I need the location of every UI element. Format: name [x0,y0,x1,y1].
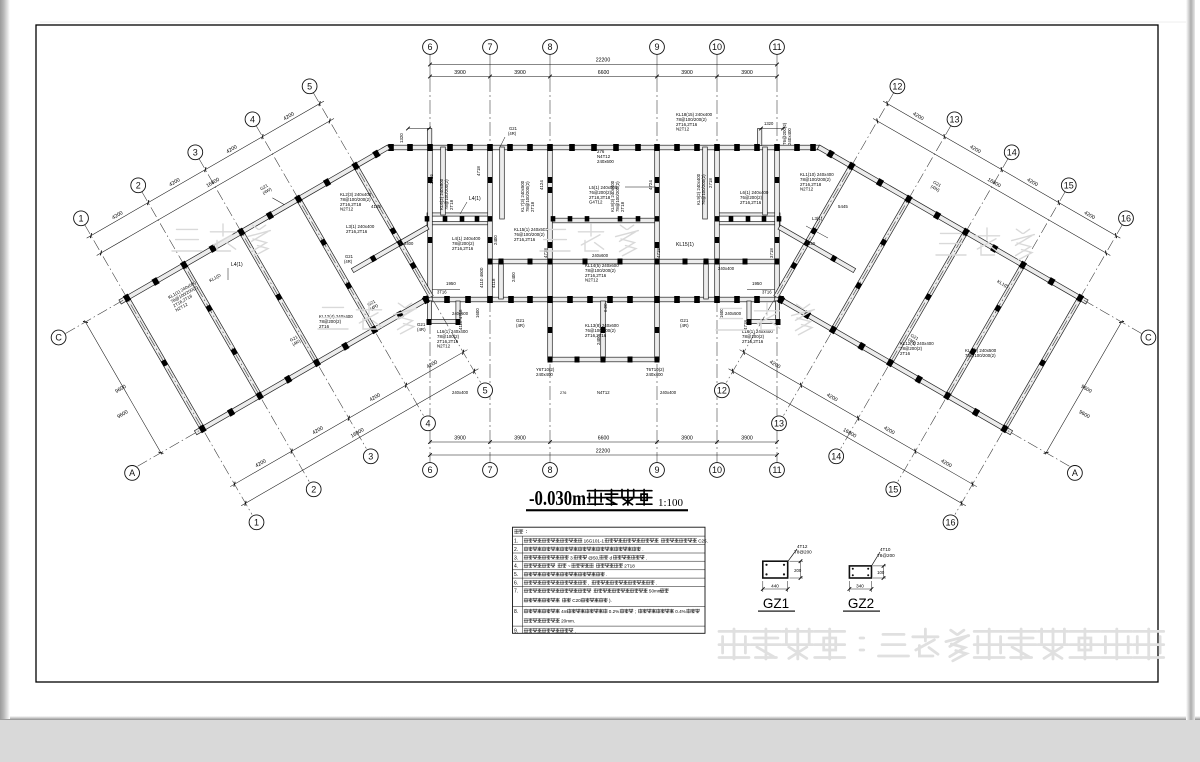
svg-text:2.: 2. [514,547,518,553]
svg-text:2T16,2T16: 2T16,2T16 [452,246,474,251]
svg-text:3718: 3718 [769,248,774,258]
svg-text:12: 12 [717,386,727,396]
svg-text:4718: 4718 [543,248,548,258]
svg-text:240x400: 240x400 [646,372,663,377]
svg-text:).: ). [609,598,612,603]
svg-text:1950: 1950 [446,281,456,286]
svg-text:3900: 3900 [454,435,466,441]
svg-text:1.: 1. [514,539,518,545]
svg-text:240x400: 240x400 [787,128,792,145]
svg-text:2400: 2400 [404,241,414,246]
svg-text:8.: 8. [514,609,518,615]
svg-text:14: 14 [1007,148,1017,158]
svg-text:2400: 2400 [511,272,516,282]
svg-text:4155: 4155 [371,204,381,209]
svg-text:2T18: 2T18 [449,199,454,210]
svg-text:N2T12: N2T12 [437,344,451,349]
svg-text:78@100/200(2): 78@100/200(2) [965,353,996,358]
svg-text:2T18: 2T18 [530,201,535,212]
svg-text:20mm.: 20mm. [561,619,575,624]
svg-text:7.: 7. [514,589,518,595]
svg-text:N2T12: N2T12 [800,187,814,192]
svg-text:2T16: 2T16 [319,324,330,329]
svg-text:4T10: 4T10 [880,547,891,552]
svg-text:6: 6 [427,42,432,52]
svg-text:4118: 4118 [491,278,496,288]
svg-text:3900: 3900 [454,70,466,76]
svg-text:10: 10 [712,42,722,52]
svg-text:3900: 3900 [514,435,526,441]
svg-text:L4(1): L4(1) [231,262,243,268]
svg-text:276: 276 [560,391,566,395]
svg-text:6.00: 6.00 [603,303,608,312]
svg-text:5: 5 [483,386,488,396]
svg-text:L3(1): L3(1) [812,216,823,221]
svg-text:4718: 4718 [476,166,481,176]
svg-text:4718: 4718 [656,248,661,258]
svg-text:(4R): (4R) [508,131,517,136]
svg-text:N4T12: N4T12 [597,390,610,395]
svg-text:340: 340 [856,583,864,588]
svg-text:15: 15 [888,485,898,495]
svg-text:4118 4718: 4118 4718 [458,309,463,330]
svg-text:13: 13 [774,419,784,429]
svg-text:G4T12: G4T12 [589,200,603,205]
svg-text:2T16,2T16: 2T16,2T16 [514,237,536,242]
svg-text:9.: 9. [514,629,518,635]
svg-text:8: 8 [547,465,552,475]
svg-text:@50,: @50, [588,555,599,560]
svg-text:3900: 3900 [741,70,753,76]
svg-text:1:100: 1:100 [658,497,684,509]
svg-text:5: 5 [307,82,312,92]
svg-text:-0.030m: -0.030m [529,486,586,510]
svg-text:2T18: 2T18 [624,564,635,569]
svg-text:6600: 6600 [598,435,610,441]
svg-text:5.: 5. [514,572,518,578]
svg-text:2: 2 [311,485,316,495]
svg-text:16G101-1: 16G101-1 [584,539,605,544]
svg-text:2T16,2T16: 2T16,2T16 [740,200,762,205]
svg-text:3: 3 [193,148,198,158]
svg-text:16: 16 [945,518,955,528]
svg-text:4m: 4m [561,609,568,614]
svg-text:3T16: 3T16 [437,290,447,295]
svg-text:,: , [588,581,589,586]
svg-text:N2T12: N2T12 [676,127,690,132]
svg-text:5445: 5445 [838,204,848,209]
svg-text:14: 14 [831,452,841,462]
svg-text:100: 100 [877,570,885,575]
svg-text:T8@200: T8@200 [794,550,812,555]
svg-text:L4(1): L4(1) [469,196,481,202]
svg-text:.: . [606,572,607,577]
svg-text:3900: 3900 [741,435,753,441]
svg-text:11: 11 [772,465,781,475]
svg-text:.: . [656,581,657,586]
svg-text:3T16: 3T16 [762,290,772,295]
svg-text:1320: 1320 [764,121,774,126]
svg-text:0.2%: 0.2% [609,609,619,614]
svg-text:3: 3 [368,452,373,462]
svg-text:7: 7 [487,42,492,52]
svg-text:50mm: 50mm [649,589,662,594]
svg-text:2T16: 2T16 [900,351,911,356]
svg-text:N2T12: N2T12 [585,278,599,283]
svg-text:C: C [55,333,62,343]
svg-text:4718: 4718 [743,320,748,330]
svg-text:11: 11 [772,42,781,52]
svg-text:9: 9 [654,465,659,475]
svg-text:3900: 3900 [681,70,693,76]
svg-text:15: 15 [1064,181,1074,191]
svg-text:KL15(1): KL15(1) [676,242,694,248]
svg-text:2T16,2T16: 2T16,2T16 [346,229,368,234]
svg-text:(4R): (4R) [680,323,689,328]
svg-text:1: 1 [254,518,259,528]
svg-text:4.: 4. [514,564,518,570]
svg-text:4155: 4155 [806,241,816,246]
svg-text:~: ~ [568,564,571,569]
svg-text:;: ; [635,609,636,614]
svg-text:6.: 6. [514,581,518,587]
svg-text:240x400: 240x400 [660,390,677,395]
svg-text:4110 4600: 4110 4600 [479,267,484,288]
svg-text:6600: 6600 [598,70,610,76]
svg-text:6: 6 [427,465,432,475]
svg-text:2T16,2T16: 2T16,2T16 [742,339,764,344]
svg-text:2718: 2718 [708,178,713,188]
svg-text:240x500: 240x500 [725,311,742,316]
svg-text:22200: 22200 [596,448,611,454]
svg-text:240x400: 240x400 [452,390,469,395]
svg-text:1320: 1320 [399,133,404,143]
svg-text:T8@200: T8@200 [877,553,895,558]
svg-text:(4R): (4R) [417,327,426,332]
svg-text:C20: C20 [572,598,581,603]
svg-text:(4R): (4R) [516,323,525,328]
svg-text:GZ2: GZ2 [848,596,874,611]
svg-text:240x600: 240x600 [592,253,609,258]
svg-text:1950: 1950 [752,281,762,286]
svg-text:A: A [1072,468,1078,478]
svg-text:C: C [1145,333,1152,343]
svg-text:10: 10 [712,465,722,475]
svg-text:GZ1: GZ1 [763,596,789,611]
svg-text:1600: 1600 [475,308,480,318]
svg-text:(4R): (4R) [344,259,353,264]
svg-text:22200: 22200 [596,58,611,64]
svg-text:3900: 3900 [681,435,693,441]
svg-text:9: 9 [654,42,659,52]
svg-text:.: . [646,555,647,560]
svg-text:.: . [642,547,643,552]
svg-text:d: d [610,555,613,560]
svg-text:4T12: 4T12 [797,544,808,549]
svg-text:7: 7 [487,465,492,475]
svg-text:C25.: C25. [698,539,708,544]
svg-text:200: 200 [794,568,802,573]
svg-text:16: 16 [1121,214,1131,224]
svg-text:3.: 3. [514,555,518,561]
svg-text:4: 4 [425,419,430,429]
svg-text:.: . [575,629,576,634]
svg-text:76@100/200(2): 76@100/200(2) [701,174,706,205]
svg-text:440: 440 [771,583,779,588]
svg-text:N2T12: N2T12 [340,207,354,212]
svg-text:3: 3 [570,555,573,560]
svg-text:3716: 3716 [429,174,434,184]
svg-text:4: 4 [250,115,255,125]
svg-text:A: A [129,468,135,478]
svg-text:13: 13 [949,115,959,125]
svg-text:4724: 4724 [648,180,653,190]
svg-text:2400: 2400 [493,235,498,245]
svg-text:1: 1 [78,214,83,224]
svg-text:240x400: 240x400 [536,372,553,377]
svg-text:2T18: 2T18 [620,201,625,212]
svg-text:240x600: 240x600 [597,159,614,164]
svg-text:1600: 1600 [719,308,724,318]
svg-text:4124: 4124 [539,180,544,190]
svg-text:2: 2 [136,181,141,191]
svg-text:3900: 3900 [514,70,526,76]
svg-text:8: 8 [547,42,552,52]
svg-text:12: 12 [892,82,902,92]
svg-text:240x400: 240x400 [718,266,735,271]
svg-text:2400: 2400 [596,335,601,345]
svg-text:0.4%: 0.4% [675,609,685,614]
